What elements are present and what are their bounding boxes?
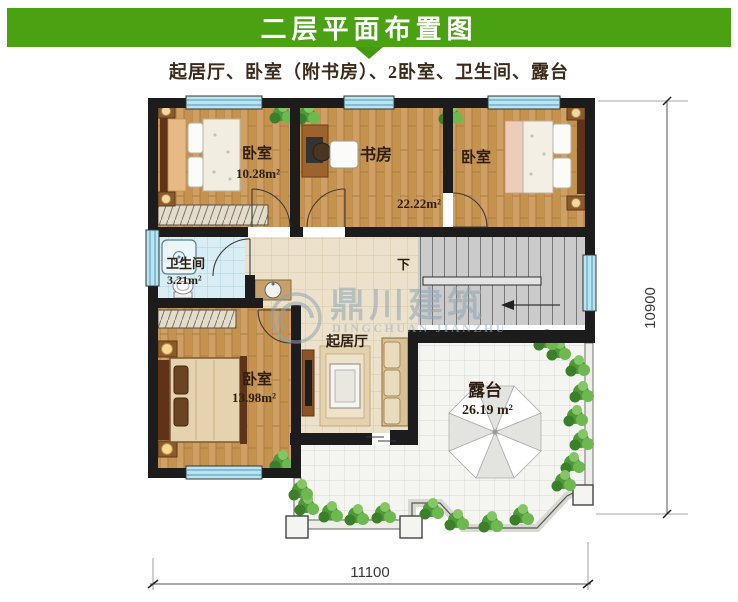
stairs-down-label: 下 <box>397 257 410 272</box>
study-label: 书房 <box>360 145 392 164</box>
window <box>146 230 159 286</box>
bedroom-top-left-area: 10.28m² <box>236 166 280 181</box>
terrace-label: 露台 <box>468 380 502 400</box>
office-chair-icon <box>313 143 331 161</box>
pillar <box>286 516 308 538</box>
watermark-latin: DINGCHUAN JIANZHU <box>332 321 507 335</box>
window <box>583 255 596 311</box>
living-room-label: 起居厅 <box>325 333 368 350</box>
study-area: 22.22m² <box>397 196 441 211</box>
desk <box>302 125 331 177</box>
pillar <box>400 516 422 538</box>
window <box>186 466 262 479</box>
lamp-icon <box>572 109 581 118</box>
lamp-icon <box>162 444 173 455</box>
bedroom-top-left-label: 卧室 <box>242 144 272 162</box>
window <box>488 96 560 109</box>
lamp-icon <box>162 195 171 204</box>
watermark-name: 鼎川建筑 <box>330 286 486 325</box>
terrace-area: 26.19 m² <box>462 403 513 418</box>
pillar <box>573 485 593 505</box>
bathroom-area: 3.21m² <box>167 273 202 287</box>
dimension-width: 11100 <box>350 564 390 581</box>
sofa <box>382 338 408 426</box>
floor-plan-page: 二层平面布置图 起居厅、卧室（附书房）、2卧室、卫生间、露台 <box>0 0 738 602</box>
window <box>344 96 394 109</box>
seat <box>330 141 358 168</box>
window <box>186 96 262 109</box>
tv-icon <box>305 360 312 406</box>
bathroom-label: 卫生间 <box>166 256 205 271</box>
floor-plan-drawing: 鼎川建筑 DINGCHUAN JIANZHU 卧室 10.28m² 书房 22.… <box>0 0 738 602</box>
bedroom-bottom-left-label: 卧室 <box>242 370 272 388</box>
lamp-icon <box>162 344 173 355</box>
bedroom-top-right-label: 卧室 <box>461 148 491 166</box>
dimension-height: 10900 <box>642 287 659 329</box>
bedroom-bottom-left-area: 13.98m² <box>232 390 276 405</box>
wardrobe <box>158 310 236 328</box>
coffee-table <box>330 364 360 408</box>
stair-handrail <box>423 277 541 285</box>
lamp-icon <box>572 199 581 208</box>
